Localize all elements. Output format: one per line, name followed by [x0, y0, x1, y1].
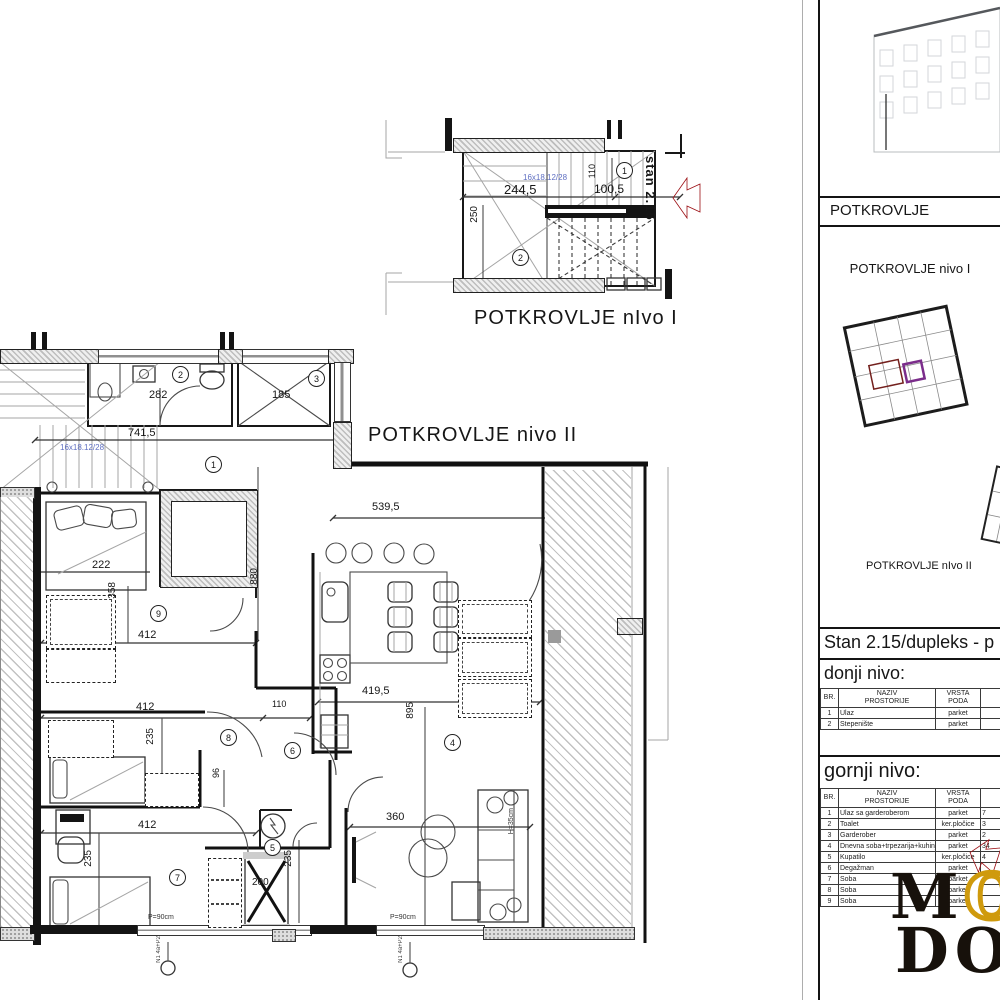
- keyplan-nivo1: [835, 299, 976, 436]
- table-row: 1Ulazparket: [821, 708, 1000, 719]
- window-tag: N1 4a+P2: [398, 936, 404, 963]
- terrace-door-mark: [548, 630, 561, 643]
- table-row: 2Stepeništeparket: [821, 719, 1000, 730]
- panel-divider: [818, 755, 1000, 757]
- table-cell: parket: [936, 808, 981, 819]
- plan-nivo2: POTKROVLJE nivo II 282 185 741,5 16x18.1…: [0, 330, 700, 980]
- architectural-sheet: { "titles": { "plan1_label": "POTKROVLJE…: [0, 0, 1000, 1000]
- dimension-label: 412: [138, 630, 156, 641]
- table-cell: parket: [936, 708, 981, 719]
- table-header-row: BR.NAZIVPROSTORIJEVRSTAPODAPOVRPO: [821, 789, 1000, 808]
- panel-divider: [818, 196, 1000, 198]
- upper-level-heading: gornji nivo:: [824, 761, 921, 781]
- dimension-label: 185: [272, 390, 290, 401]
- table-cell: 8: [821, 885, 839, 896]
- dimension-label: 412: [136, 702, 154, 713]
- dimension-label: 110: [272, 700, 286, 709]
- room-number-badge: 7: [169, 869, 186, 886]
- dimension-label: 200: [252, 878, 269, 888]
- table-cell: 2: [821, 819, 839, 830]
- table-cell: 4: [821, 841, 839, 852]
- table-cell: 9: [821, 896, 839, 907]
- pillar: [617, 618, 643, 635]
- terrace-hatch: [0, 497, 33, 927]
- wardrobe-dashed: [46, 595, 116, 649]
- dimension-label: 360: [386, 812, 404, 823]
- column-header: VRSTAPODA: [936, 789, 981, 808]
- room-number-badge: 1: [205, 456, 222, 473]
- room-number-badge: 5: [264, 839, 281, 856]
- table-cell: 1: [821, 808, 839, 819]
- wardrobe-dashed: [458, 600, 532, 638]
- keyplan-title: POTKROVLJE nIvo II: [866, 561, 972, 572]
- building-photo: [822, 2, 1000, 196]
- dimension-label: 412: [138, 820, 156, 831]
- window: [376, 925, 485, 936]
- red-arrow-marker: [380, 106, 710, 341]
- table-cell: Toalet: [839, 819, 936, 830]
- table-cell: Ulaz sa garderoberom: [839, 808, 936, 819]
- dimension-label: 235: [284, 850, 294, 867]
- wardrobe-dashed: [458, 638, 532, 677]
- dimension-label: 222: [92, 560, 110, 571]
- column-header: NAZIVPROSTORIJE: [839, 689, 936, 708]
- table-cell: [981, 719, 1000, 730]
- desk-dashed: [48, 720, 114, 758]
- table-cell: 1: [821, 708, 839, 719]
- wardrobe-dashed: [458, 679, 532, 718]
- column-header: BR.: [821, 789, 839, 808]
- table-cell: 7: [981, 808, 1000, 819]
- dimension-label: 539,5: [372, 502, 400, 513]
- room-number-badge: 4: [444, 734, 461, 751]
- stair-note: 16x18.12/28: [60, 444, 104, 452]
- window: [334, 362, 351, 422]
- parapet: [483, 927, 635, 940]
- wardrobe-dashed: [46, 649, 116, 683]
- wardrobe-dashed: [145, 773, 199, 807]
- stair-void: [171, 501, 247, 577]
- photo-caption: POTKROVLJE: [830, 203, 929, 218]
- table-cell: 3: [981, 819, 1000, 830]
- watermark-logo-line2: DO: [895, 920, 1000, 982]
- lower-level-table: BR.NAZIVPROSTORIJEVRSTAPODAP1Ulazparket2…: [820, 688, 1000, 730]
- hatched-wall: [333, 422, 352, 469]
- dimension-label: 235: [146, 728, 156, 745]
- table-cell: 3: [821, 830, 839, 841]
- parapet-note: P=90cm: [148, 914, 174, 921]
- room-number-badge: 9: [150, 605, 167, 622]
- parapet-note: P=90cm: [390, 914, 416, 921]
- plan-title: POTKROVLJE nIvo I: [474, 308, 678, 328]
- hatched-wall: [0, 349, 100, 364]
- dimension-label: 419,5: [362, 686, 390, 697]
- dimension-label: 235: [84, 850, 94, 867]
- table-cell: 6: [821, 863, 839, 874]
- height-note: H=35cm: [508, 808, 515, 834]
- sheet-border: [802, 0, 803, 1000]
- panel-divider: [818, 225, 1000, 227]
- panel-divider: [818, 658, 1000, 660]
- exterior-wall: [30, 925, 137, 934]
- column-header: VRSTAPODA: [936, 689, 981, 708]
- panel-divider: [818, 627, 1000, 629]
- plan-title: POTKROVLJE nivo II: [368, 425, 577, 445]
- column-header: P: [981, 689, 1000, 708]
- column-header: BR.: [821, 689, 839, 708]
- keyplan-title: POTKROVLJE nivo I: [840, 262, 980, 275]
- plan-nivo1: 16x18.12/28 244,5 100,5 110 250 1 2 stan…: [380, 106, 710, 341]
- room-number-badge: 3: [308, 370, 325, 387]
- dimension-label: 358: [108, 582, 118, 599]
- apartment-title: Stan 2.15/dupleks - p: [824, 633, 994, 651]
- table-cell: Stepenište: [839, 719, 936, 730]
- table-cell: Ulaz: [839, 708, 936, 719]
- terrace-hatch: [545, 470, 631, 928]
- room-number-badge: 6: [284, 742, 301, 759]
- window: [98, 349, 220, 364]
- dimension-label: 741,5: [128, 428, 156, 439]
- table-cell: ker.pločice: [936, 819, 981, 830]
- parapet: [272, 929, 296, 942]
- cabinet-dashed: [208, 858, 242, 928]
- lower-level-heading: donji nivo:: [824, 664, 905, 682]
- column-header: POVRPO: [981, 789, 1000, 808]
- dimension-label: 282: [149, 390, 167, 401]
- table-cell: [981, 708, 1000, 719]
- table-cell: 2: [821, 719, 839, 730]
- exterior-wall: [310, 925, 376, 934]
- table-cell: parket: [936, 719, 981, 730]
- column-header: NAZIVPROSTORIJE: [839, 789, 936, 808]
- exterior-wall: [33, 487, 41, 945]
- window: [242, 349, 330, 364]
- dimension-label: 895: [406, 702, 416, 719]
- room-number-badge: 2: [172, 366, 189, 383]
- table-row: 1Ulaz sa garderoberomparket7: [821, 808, 1000, 819]
- keyplan-nivo2: [980, 465, 1000, 546]
- table-cell: 5: [821, 852, 839, 863]
- room-number-badge: 8: [220, 729, 237, 746]
- table-header-row: BR.NAZIVPROSTORIJEVRSTAPODAP: [821, 689, 1000, 708]
- table-row: 2Toaletker.pločice3: [821, 819, 1000, 830]
- dimension-label: 96: [212, 768, 221, 778]
- dimension-label: 880: [250, 568, 260, 585]
- table-cell: Dnevna soba+trpezarija+kuhinja: [839, 841, 936, 852]
- hatched-wall: [218, 349, 244, 364]
- window-tag: N1 4a+P2: [156, 936, 162, 963]
- table-cell: Garderober: [839, 830, 936, 841]
- table-cell: 7: [821, 874, 839, 885]
